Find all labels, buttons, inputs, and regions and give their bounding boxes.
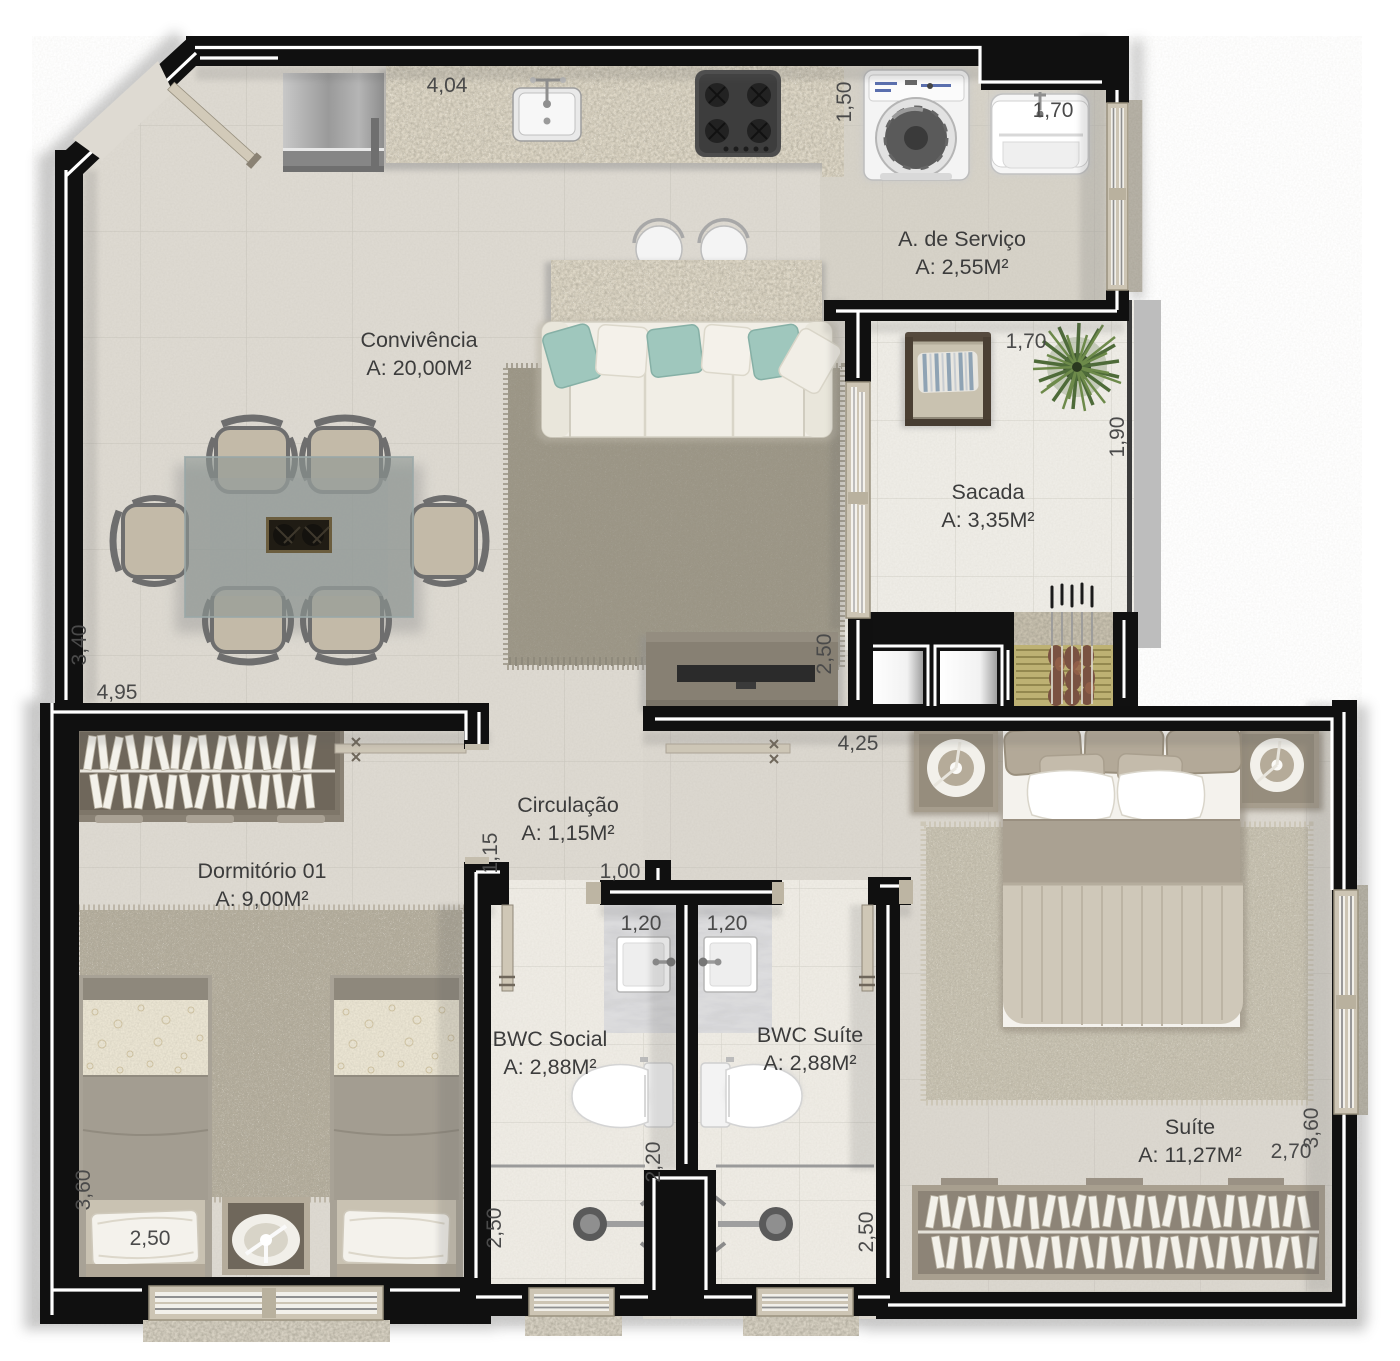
svg-text:BWC Suíte: BWC Suíte: [757, 1023, 863, 1047]
svg-text:2,50: 2,50: [813, 634, 836, 675]
svg-text:1,70: 1,70: [1033, 99, 1074, 122]
svg-text:3,60: 3,60: [1300, 1108, 1323, 1149]
svg-text:3,60: 3,60: [72, 1170, 95, 1211]
svg-text:A: 2,88M²: A: 2,88M²: [763, 1051, 856, 1075]
svg-text:A: 3,35M²: A: 3,35M²: [941, 508, 1034, 532]
svg-text:2,50: 2,50: [855, 1212, 878, 1253]
svg-text:A: 9,00M²: A: 9,00M²: [215, 887, 308, 911]
svg-text:Circulação: Circulação: [517, 793, 619, 817]
svg-text:1,15: 1,15: [479, 833, 502, 874]
svg-text:2,50: 2,50: [130, 1227, 171, 1250]
svg-text:Sacada: Sacada: [952, 480, 1025, 504]
svg-text:4,95: 4,95: [97, 681, 138, 704]
svg-text:1,20: 1,20: [621, 912, 662, 935]
svg-text:A: 11,27M²: A: 11,27M²: [1138, 1143, 1242, 1167]
svg-text:1,20: 1,20: [707, 912, 748, 935]
svg-text:Dormitório 01: Dormitório 01: [197, 859, 326, 883]
svg-text:A: 2,55M²: A: 2,55M²: [915, 255, 1008, 279]
svg-text:A: 2,88M²: A: 2,88M²: [503, 1055, 596, 1079]
svg-text:A: 1,15M²: A: 1,15M²: [521, 821, 614, 845]
svg-text:Suíte: Suíte: [1165, 1115, 1215, 1139]
svg-text:2,50: 2,50: [483, 1208, 506, 1249]
svg-text:A. de Serviço: A. de Serviço: [898, 227, 1026, 251]
svg-text:BWC Social: BWC Social: [493, 1027, 608, 1051]
svg-text:1,00: 1,00: [600, 860, 641, 883]
svg-text:1,50: 1,50: [833, 82, 856, 123]
svg-text:Convivência: Convivência: [360, 328, 477, 352]
svg-text:1,70: 1,70: [1006, 330, 1047, 353]
svg-text:3,40: 3,40: [68, 625, 91, 666]
svg-text:1,90: 1,90: [1106, 417, 1129, 458]
svg-text:4,04: 4,04: [427, 74, 468, 97]
svg-text:2,20: 2,20: [642, 1142, 665, 1183]
svg-text:A: 20,00M²: A: 20,00M²: [366, 356, 471, 380]
svg-text:4,25: 4,25: [838, 732, 879, 755]
